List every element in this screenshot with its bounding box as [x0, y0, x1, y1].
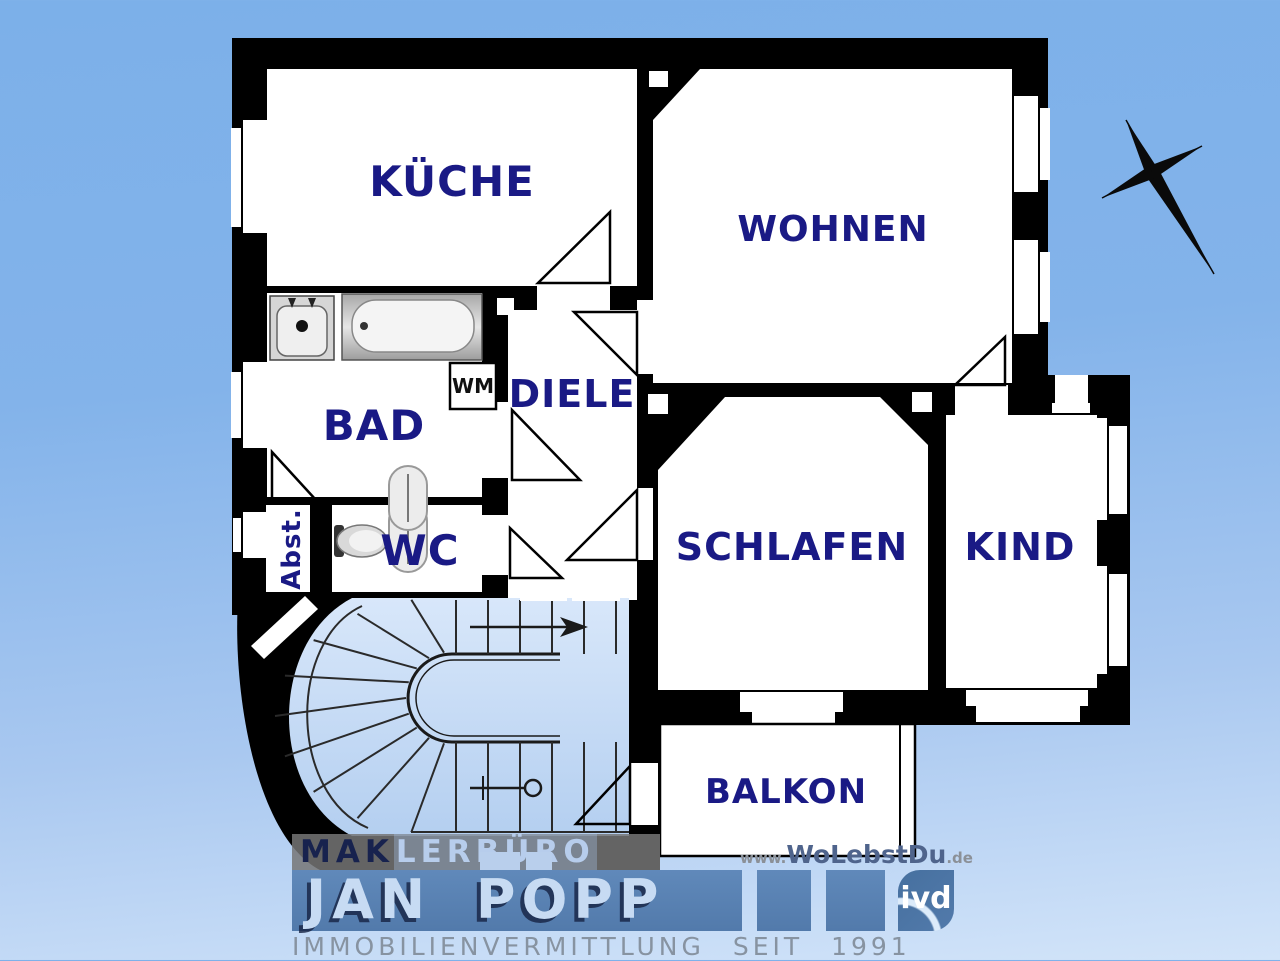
label-kueche: KÜCHE — [369, 156, 535, 206]
window-kueche-glass — [243, 120, 267, 233]
window-wohnen-2-glass — [1014, 240, 1038, 334]
window-kind-top-frame — [1052, 403, 1090, 413]
window-kueche-frame — [231, 128, 241, 227]
door-gap-wohnen-kind — [955, 385, 1008, 415]
staircase — [275, 598, 629, 836]
label-bad: BAD — [323, 401, 425, 450]
room-diele-area — [508, 310, 637, 600]
balcony-door-glass — [740, 692, 843, 712]
compass-rose-icon — [1102, 120, 1214, 274]
window-bad-glass — [243, 362, 267, 448]
sink-icon — [270, 296, 334, 360]
door-gap-bad — [482, 402, 508, 478]
label-wohnen: WOHNEN — [737, 209, 928, 250]
wall-shaft-1 — [649, 71, 668, 87]
label-waschmaschine: WM — [452, 374, 494, 398]
window-abstell-glass — [243, 512, 267, 558]
wall-shaft-3 — [648, 394, 668, 414]
label-diele: DIELE — [509, 372, 636, 416]
window-wohnen-1-frame — [1040, 108, 1050, 180]
wall-shaft-2 — [497, 298, 514, 315]
window-kind-bottom-frame — [976, 706, 1080, 722]
toilet-icon — [334, 525, 387, 557]
window-kind-bottom-glass — [966, 690, 1088, 706]
door-gap-wc — [482, 515, 508, 575]
label-wc: WC — [380, 526, 459, 575]
door-gap-stair-balkon — [631, 763, 658, 825]
label-abstell: Abst. — [277, 508, 307, 590]
window-kind-2-frame — [1109, 574, 1127, 666]
window-kind-1-glass — [1097, 418, 1107, 520]
floor-plan-drawing: KÜCHE WOHNEN DIELE BAD WC Abst. SCHLAFEN… — [0, 0, 1280, 960]
window-kind-1-frame — [1109, 426, 1127, 514]
door-gap-kueche — [537, 285, 610, 310]
floor-plan-page: KÜCHE WOHNEN DIELE BAD WC Abst. SCHLAFEN… — [0, 0, 1280, 960]
window-abstell-frame — [233, 518, 241, 552]
window-kind-2-glass — [1097, 566, 1107, 674]
label-balkon: BALKON — [705, 772, 867, 812]
bathtub-icon — [342, 294, 482, 360]
window-bad-frame — [231, 372, 241, 438]
window-kind-top-glass — [1055, 375, 1088, 403]
wall-shaft-4 — [912, 392, 932, 412]
door-gap-entry-right — [572, 575, 620, 601]
stairwell-floor — [289, 598, 629, 836]
window-wohnen-2-frame — [1040, 252, 1050, 322]
door-gap-wohnen-diele — [637, 300, 653, 374]
window-wohnen-1-glass — [1014, 96, 1038, 192]
door-gap-schlafen — [637, 488, 653, 560]
label-kind: KIND — [965, 525, 1076, 569]
label-schlafen: SCHLAFEN — [676, 525, 908, 569]
